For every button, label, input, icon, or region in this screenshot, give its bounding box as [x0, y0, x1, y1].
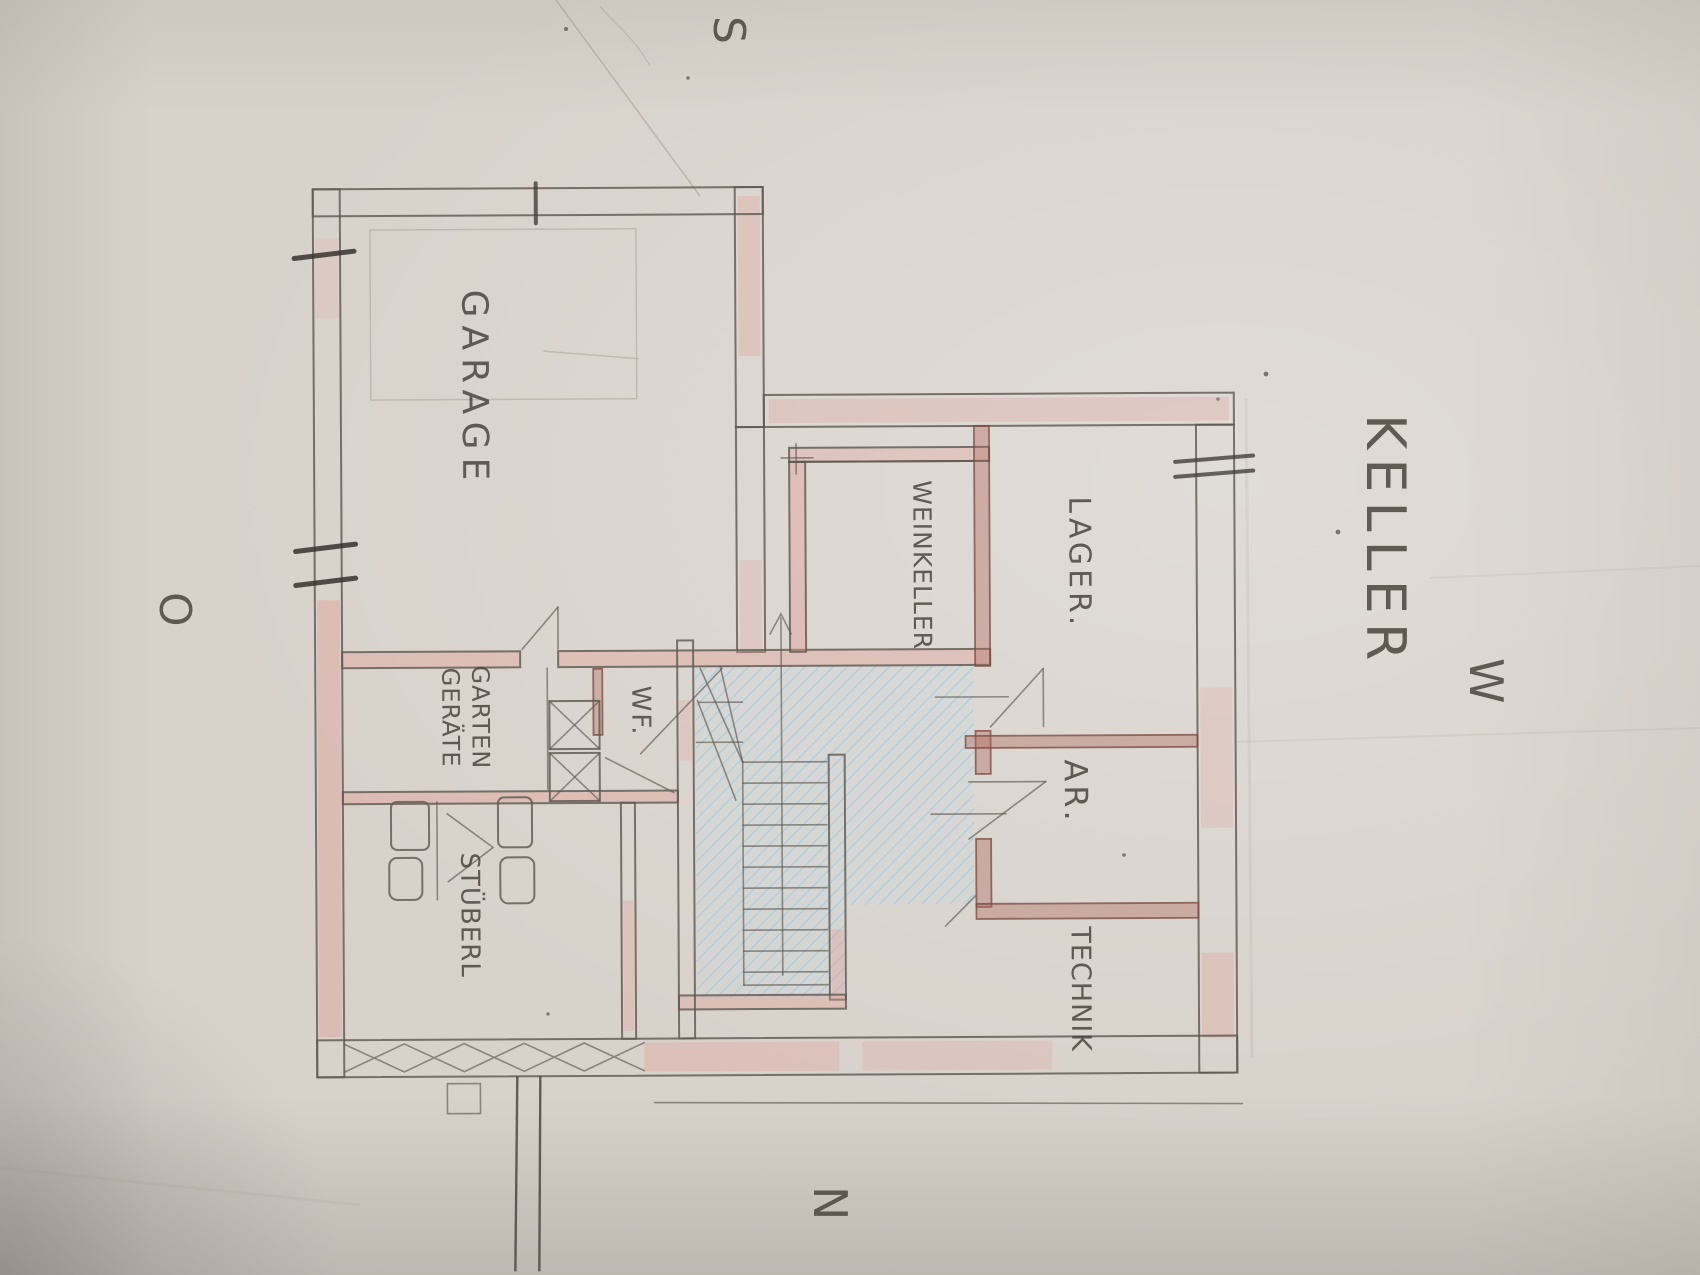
room-label-garage: GARAGE	[453, 289, 495, 488]
room-label-wf: WF.	[625, 686, 655, 737]
floor-plan: GARAGE WEINKELLER LAGER. AR. TECHNIK GAR…	[294, 179, 1258, 1272]
wall-tick-marks	[294, 179, 1254, 585]
compass-east: O	[149, 592, 200, 627]
compass-north: N	[803, 1186, 857, 1220]
room-label-gartengeraete-line1: GARTEN	[466, 665, 495, 769]
floor-plan-svg: GARAGE WEINKELLER LAGER. AR. TECHNIK GAR…	[0, 0, 1700, 1275]
room-label-technik: TECHNIK	[1065, 925, 1097, 1052]
room-label-stueberl: STÜBERL	[454, 852, 487, 977]
compass-south: S	[703, 16, 754, 44]
bottom-wall-hatch	[344, 1043, 644, 1073]
room-label-lager: LAGER.	[1061, 496, 1097, 629]
room-label-gartengeraete-line2: GERÄTE	[436, 668, 466, 768]
compass-west: W	[1459, 658, 1513, 703]
paper-creases	[0, 0, 1700, 1205]
room-label-weinkeller: WEINKELLER	[907, 480, 937, 650]
room-label-abstellraum: AR.	[1057, 759, 1095, 824]
drain-pipe	[514, 1076, 541, 1271]
floor-plan-photo: GARAGE WEINKELLER LAGER. AR. TECHNIK GAR…	[0, 0, 1700, 1275]
plan-title: KELLER	[1354, 414, 1417, 669]
